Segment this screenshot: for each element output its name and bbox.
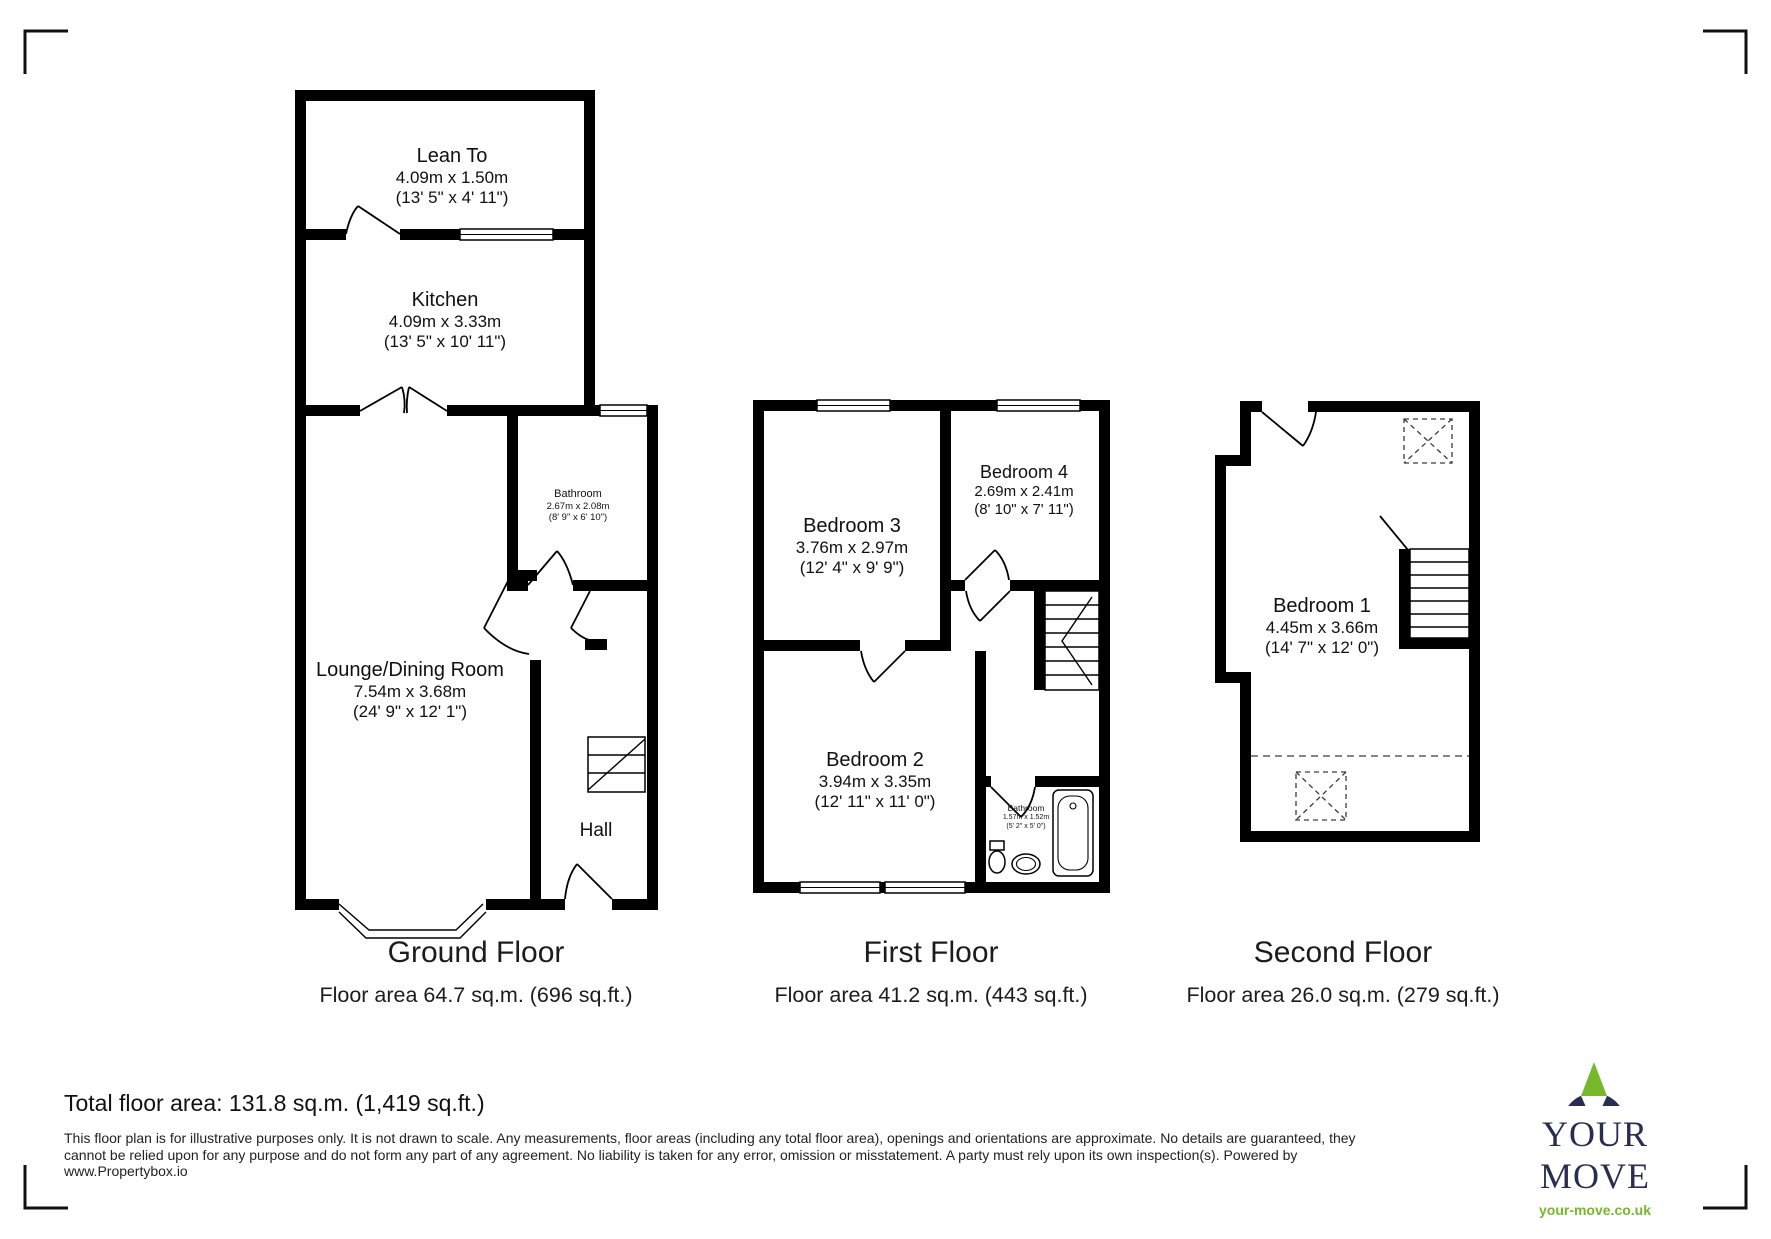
room-dim-metric: 7.54m x 3.68m: [280, 682, 540, 702]
room-name: Hall: [566, 820, 626, 842]
room-name: Bathroom: [508, 488, 648, 501]
floorplan-page: Lean To 4.09m x 1.50m (13' 5" x 4' 11") …: [0, 0, 1771, 1239]
room-name: Lounge/Dining Room: [280, 658, 540, 682]
logo-website-text: your-move.co.uk: [1490, 1202, 1700, 1218]
room-name: Bedroom 1: [1192, 594, 1452, 618]
ground-floor-area: Floor area 64.7 sq.m. (696 sq.ft.): [276, 982, 676, 1009]
second-floor-title: Second Floor: [1193, 936, 1493, 970]
room-dim-imperial: (8' 9" x 6' 10"): [508, 512, 648, 523]
room-label-lean-to: Lean To 4.09m x 1.50m (13' 5" x 4' 11"): [322, 144, 582, 208]
room-dim-metric: 2.69m x 2.41m: [924, 483, 1124, 501]
skylight-dashed-icon: [1404, 419, 1452, 463]
room-label-kitchen: Kitchen 4.09m x 3.33m (13' 5" x 10' 11"): [315, 288, 575, 352]
bay-window-icon: [339, 904, 486, 938]
your-move-logo-icon: [1490, 1038, 1700, 1106]
room-dim-imperial: (12' 11" x 11' 0"): [745, 792, 1005, 812]
room-dim-imperial: (14' 7" x 12' 0"): [1192, 638, 1452, 658]
room-name: Bathroom: [976, 803, 1076, 813]
first-floor-title: First Floor: [781, 936, 1081, 970]
room-dim-imperial: (5' 2" x 5' 0"): [976, 822, 1076, 831]
room-dim-metric: 1.57m x 1.52m: [976, 813, 1076, 822]
room-name: Bedroom 4: [924, 461, 1124, 483]
room-label-bedroom2: Bedroom 2 3.94m x 3.35m (12' 11" x 11' 0…: [745, 748, 1005, 812]
room-dim-metric: 2.67m x 2.08m: [508, 501, 648, 512]
room-dim-imperial: (13' 5" x 4' 11"): [322, 188, 582, 208]
door-icons: [1262, 412, 1408, 550]
room-dim-imperial: (8' 10" x 7' 11"): [924, 501, 1124, 519]
room-dim-imperial: (13' 5" x 10' 11"): [315, 332, 575, 352]
room-label-hall: Hall: [566, 820, 626, 842]
logo-triangle-icon: [1581, 1062, 1607, 1096]
room-name: Bedroom 2: [745, 748, 1005, 772]
ground-floor-title: Ground Floor: [326, 936, 626, 970]
stairs-icon: [588, 737, 645, 792]
stairs-icon: [1045, 591, 1099, 690]
your-move-logo: YOUR MOVE your-move.co.uk: [1490, 1038, 1700, 1218]
first-floor-area: Floor area 41.2 sq.m. (443 sq.ft.): [731, 982, 1131, 1009]
skylight-dashed-icon-lower: [1296, 772, 1346, 820]
room-dim-imperial: (24' 9" x 12' 1"): [280, 702, 540, 722]
room-label-bedroom4: Bedroom 4 2.69m x 2.41m (8' 10" x 7' 11"…: [924, 461, 1124, 519]
room-name: Kitchen: [315, 288, 575, 312]
room-dim-metric: 4.45m x 3.66m: [1192, 618, 1452, 638]
room-dim-metric: 3.94m x 3.35m: [745, 772, 1005, 792]
room-label-gf-bathroom: Bathroom 2.67m x 2.08m (8' 9" x 6' 10"): [508, 488, 648, 523]
disclaimer-text: This floor plan is for illustrative purp…: [64, 1130, 1374, 1180]
sink-icon: [1012, 854, 1040, 874]
room-label-bedroom3: Bedroom 3 3.76m x 2.97m (12' 4" x 9' 9"): [722, 514, 982, 578]
room-label-ff-bathroom: Bathroom 1.57m x 1.52m (5' 2" x 5' 0"): [976, 803, 1076, 831]
room-name: Lean To: [322, 144, 582, 168]
room-label-lounge: Lounge/Dining Room 7.54m x 3.68m (24' 9"…: [280, 658, 540, 722]
room-label-bedroom1: Bedroom 1 4.45m x 3.66m (14' 7" x 12' 0"…: [1192, 594, 1452, 658]
room-dim-imperial: (12' 4" x 9' 9"): [722, 558, 982, 578]
total-floor-area: Total floor area: 131.8 sq.m. (1,419 sq.…: [64, 1090, 485, 1117]
second-floor-area: Floor area 26.0 sq.m. (279 sq.ft.): [1183, 982, 1503, 1009]
room-dim-metric: 3.76m x 2.97m: [722, 538, 982, 558]
room-dim-metric: 4.09m x 1.50m: [322, 168, 582, 188]
logo-brand-text: YOUR MOVE: [1490, 1113, 1700, 1197]
toilet-icon: [989, 841, 1005, 873]
room-dim-metric: 4.09m x 3.33m: [315, 312, 575, 332]
